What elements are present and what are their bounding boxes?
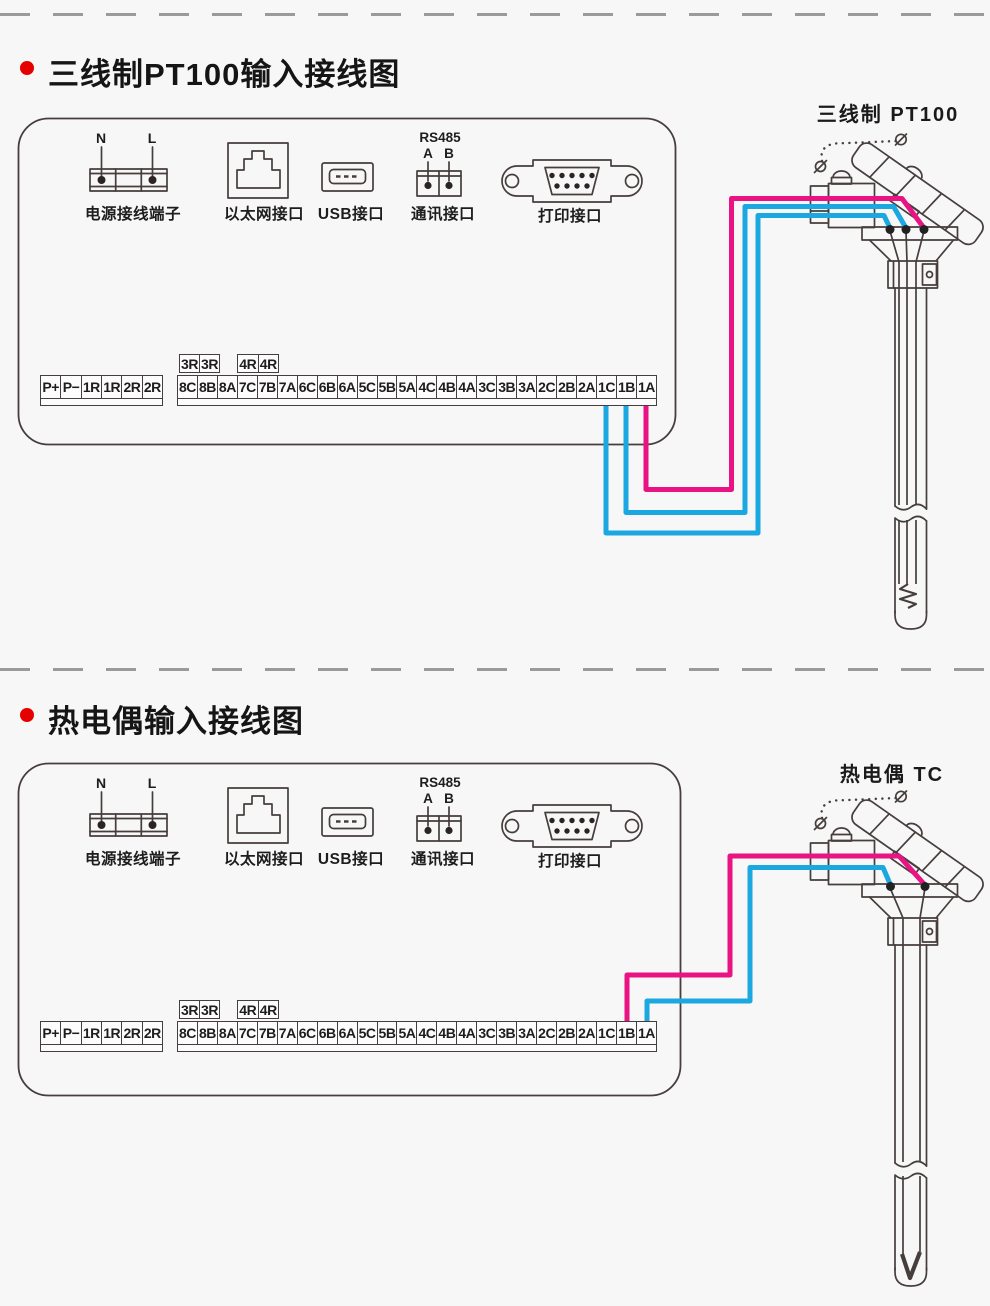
terminal-cell: 1A <box>637 1022 656 1044</box>
terminal-cell: 7A <box>278 376 298 398</box>
terminal-cell: 2R <box>122 376 142 398</box>
wire-1B-pink <box>627 856 925 1023</box>
terminal-cell: 8B <box>198 376 218 398</box>
terminal-cell: 3R <box>200 1001 219 1018</box>
sensor1-caption: 三线制 PT100 <box>817 98 959 127</box>
wire-1B-cyan <box>626 207 906 513</box>
terminal-cell: 6A <box>338 376 358 398</box>
terminal-cell: 3R <box>200 355 219 372</box>
terminal-strip-left: P+P−1R1R2R2R <box>40 375 163 406</box>
terminal-cell: 4B <box>437 376 457 398</box>
terminal-cell: 3R <box>180 1001 200 1018</box>
terminal-cell: 2B <box>557 1022 577 1044</box>
terminal-cell: 4R <box>238 355 259 372</box>
terminal-cell: 5C <box>358 376 378 398</box>
terminal-cell: 4C <box>417 1022 437 1044</box>
terminal-cell: 2A <box>577 1022 597 1044</box>
terminal-cell: 5C <box>358 1022 378 1044</box>
terminal-cell: 3B <box>497 376 517 398</box>
top-dashed-rule <box>0 13 990 16</box>
pt100-element <box>890 231 924 608</box>
terminal-cell: P+ <box>41 376 61 398</box>
pin-label-b: B <box>444 791 454 806</box>
section1-title: 三线制PT100输入接线图 <box>48 49 400 94</box>
power-port-label: 电源接线端子 <box>85 202 181 224</box>
terminal-cell: 2R <box>143 1022 162 1044</box>
terminal-cell: 2C <box>537 1022 557 1044</box>
terminal-cell: 2C <box>537 376 557 398</box>
terminal-cell: 1B <box>617 1022 637 1044</box>
bullet-icon <box>20 708 34 722</box>
aux-terminal-box-3r: 3R3R <box>179 1000 220 1019</box>
terminal-cell: 7C <box>238 1022 258 1044</box>
terminal-cell: 8A <box>218 1022 238 1044</box>
section1-wires <box>606 199 924 534</box>
terminal-cell: 5A <box>397 1022 417 1044</box>
terminal-cell: 2R <box>143 376 162 398</box>
terminal-cell: 1C <box>597 376 617 398</box>
terminal-cell: 2B <box>557 376 577 398</box>
aux-terminal-box-4r: 4R4R <box>237 354 279 373</box>
terminal-cell: 7B <box>258 376 278 398</box>
terminal-cell: 6C <box>298 376 318 398</box>
terminal-cell: 3C <box>477 1022 497 1044</box>
usb-port-label: USB接口 <box>318 202 384 224</box>
rs485-label: RS485 <box>419 775 460 790</box>
pin-label-n: N <box>96 130 106 146</box>
bullet-icon <box>20 61 34 75</box>
terminal-cell: 2R <box>122 1022 142 1044</box>
pin-label-b: B <box>444 146 454 161</box>
terminal-cell: 4C <box>417 376 437 398</box>
terminal-cell: 6C <box>298 1022 318 1044</box>
terminal-cell: 1R <box>102 1022 122 1044</box>
wiring-diagram-page: 三线制PT100输入接线图 热电偶输入接线图 三线制 PT100 热电偶 TC <box>0 0 990 1306</box>
terminal-cell: 6A <box>338 1022 358 1044</box>
terminal-cell: 8A <box>218 376 238 398</box>
sensor2-wire-posts <box>886 882 930 891</box>
sensor2-caption: 热电偶 TC <box>840 758 944 787</box>
terminal-cell: 2A <box>577 376 597 398</box>
aux-terminal-box-4r: 4R4R <box>237 1000 279 1019</box>
terminal-cell: P+ <box>41 1022 61 1044</box>
section-divider-dashed-rule <box>0 668 990 671</box>
terminal-cell: 8C <box>178 1022 198 1044</box>
terminal-cell: 4R <box>259 355 279 372</box>
terminal-cell: 7A <box>278 1022 298 1044</box>
terminal-cell: 5B <box>378 1022 398 1044</box>
comm-port-label: 通讯接口 <box>411 847 475 869</box>
wire-1A-pink <box>646 199 924 490</box>
comm-port-label: 通讯接口 <box>411 202 475 224</box>
tc-sensor <box>811 791 990 1286</box>
rs485-label: RS485 <box>419 130 460 145</box>
terminal-cell: 1C <box>597 1022 617 1044</box>
terminal-cell: 3B <box>497 1022 517 1044</box>
pt100-sensor <box>811 134 990 629</box>
terminal-cell: P− <box>61 376 81 398</box>
terminal-cell: 4R <box>238 1001 259 1018</box>
terminal-cell: 3A <box>517 376 537 398</box>
terminal-strip-left: P+P−1R1R2R2R <box>40 1021 163 1052</box>
section2-wires <box>627 856 925 1023</box>
ethernet-port-label: 以太网接口 <box>224 202 304 224</box>
terminal-cell: 4A <box>457 376 477 398</box>
pin-label-a: A <box>423 146 433 161</box>
terminal-cell: 1B <box>617 376 637 398</box>
terminal-cell: 1R <box>82 376 102 398</box>
terminal-cell: 5A <box>397 376 417 398</box>
terminal-cell: P− <box>61 1022 81 1044</box>
tc-element <box>891 888 926 1278</box>
ethernet-port-label: 以太网接口 <box>224 847 304 869</box>
power-port-label: 电源接线端子 <box>85 847 181 869</box>
terminal-cell: 4A <box>457 1022 477 1044</box>
terminal-cell: 8B <box>198 1022 218 1044</box>
terminal-cell: 3C <box>477 376 497 398</box>
terminal-strip-main: 8C8B8A7C7B7A6C6B6A5C5B5A4C4B4A3C3B3A2C2B… <box>177 1021 657 1052</box>
pin-label-l: L <box>148 130 157 146</box>
terminal-cell: 3R <box>180 355 200 372</box>
terminal-cell: 4R <box>259 1001 279 1018</box>
aux-terminal-box-3r: 3R3R <box>179 354 220 373</box>
sensor1-wire-posts <box>886 225 929 234</box>
terminal-cell: 1R <box>82 1022 102 1044</box>
section2-title: 热电偶输入接线图 <box>48 696 304 741</box>
terminal-cell: 3A <box>517 1022 537 1044</box>
terminal-cell: 4B <box>437 1022 457 1044</box>
terminal-cell: 1R <box>102 376 122 398</box>
pin-label-l: L <box>148 775 157 791</box>
pin-label-a: A <box>423 791 433 806</box>
usb-port-label: USB接口 <box>318 847 384 869</box>
printer-port-label: 打印接口 <box>538 204 602 226</box>
wire-1A-cyan <box>647 868 891 1024</box>
terminal-strip-main: 8C8B8A7C7B7A6C6B6A5C5B5A4C4B4A3C3B3A2C2B… <box>177 375 657 406</box>
terminal-cell: 6B <box>318 1022 338 1044</box>
terminal-cell: 8C <box>178 376 198 398</box>
terminal-cell: 7C <box>238 376 258 398</box>
printer-port-label: 打印接口 <box>538 849 602 871</box>
diagram-line-art <box>0 0 990 1306</box>
terminal-cell: 7B <box>258 1022 278 1044</box>
pin-label-n: N <box>96 775 106 791</box>
terminal-cell: 6B <box>318 376 338 398</box>
terminal-cell: 5B <box>378 376 398 398</box>
terminal-cell: 1A <box>637 376 656 398</box>
